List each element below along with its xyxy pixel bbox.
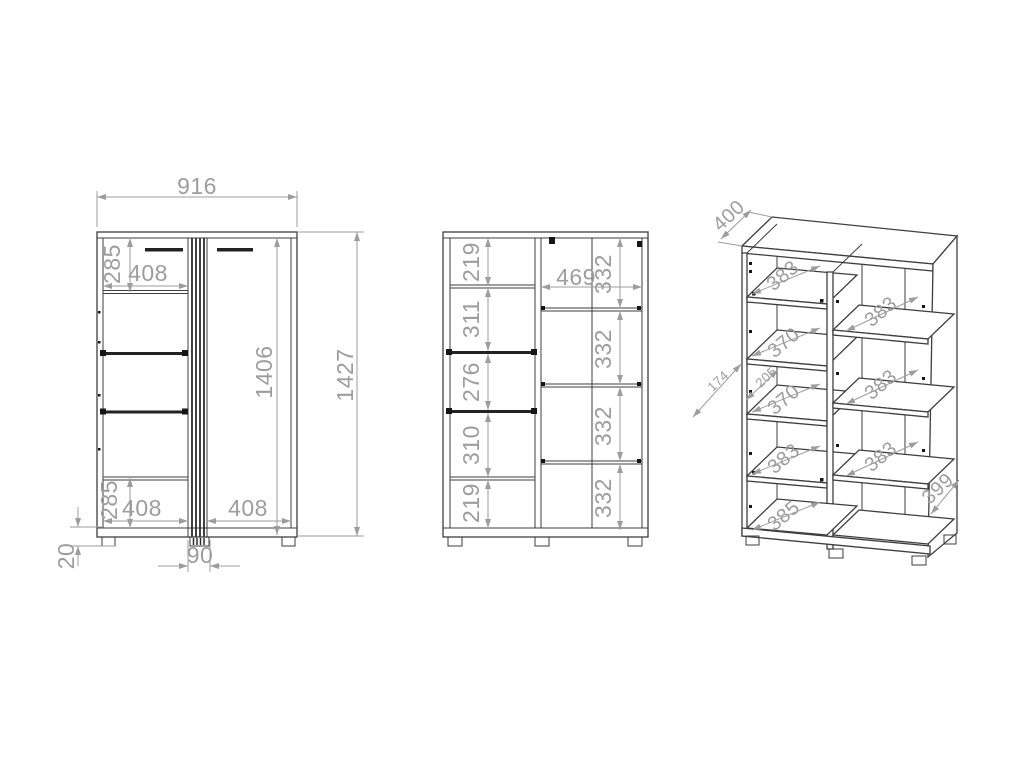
view-front-interior: 219 311 276 310 219 469 332 332 332 332	[443, 232, 648, 546]
dim-top-left-height: 285	[99, 244, 125, 284]
drawing-canvas: 916 285 408 1406 1427 285 408 408	[0, 0, 1016, 762]
dim-bottom-left-width: 408	[122, 495, 162, 521]
right-foot	[282, 537, 295, 546]
dim-top-depth: 400	[709, 196, 750, 236]
dim-foot-height: 20	[53, 543, 79, 570]
dim-left-section-2: 311	[458, 300, 484, 338]
dim-bottom-right-width: 408	[228, 495, 268, 521]
hinge-plate-left	[549, 237, 555, 244]
dim-left-section-4: 310	[458, 425, 484, 465]
view-front-exterior: 916 285 408 1406 1427 285 408 408	[53, 173, 364, 572]
dim-left-section-1: 219	[458, 242, 484, 282]
technical-drawing-page: 916 285 408 1406 1427 285 408 408	[0, 0, 1016, 762]
dim-total-width: 916	[177, 173, 217, 199]
view-isometric: 400 383 370 370 383 385 383 383 383 174 …	[693, 196, 959, 565]
dim-right-section-3: 332	[590, 406, 616, 446]
dim-left-section-5: 219	[458, 483, 484, 523]
dim-right-section-4: 332	[590, 478, 616, 518]
carcass-feet	[448, 537, 642, 546]
dim-top-left-width: 408	[128, 260, 168, 286]
left-side-panel-edge	[742, 253, 747, 536]
dim-left-section-3: 276	[458, 362, 484, 402]
hinge-plate-right	[637, 241, 642, 247]
center-lamella-strip	[188, 238, 207, 537]
left-foot	[102, 537, 115, 546]
left-door-shelf-lines	[98, 291, 188, 481]
dim-strip-width: 90	[187, 542, 214, 568]
dim-right-section-1: 332	[590, 254, 616, 294]
dim-total-height: 1427	[332, 348, 358, 401]
dim-interior-height: 1406	[251, 345, 277, 398]
left-door-handle	[145, 248, 183, 252]
front-exterior-dimensions: 916 285 408 1406 1427 285 408 408	[53, 173, 364, 572]
dim-bottom-left-height: 285	[96, 480, 122, 520]
dim-right-section-2: 332	[590, 329, 616, 369]
right-door-handle	[217, 248, 253, 252]
dim-detail-174: 174	[704, 368, 731, 395]
